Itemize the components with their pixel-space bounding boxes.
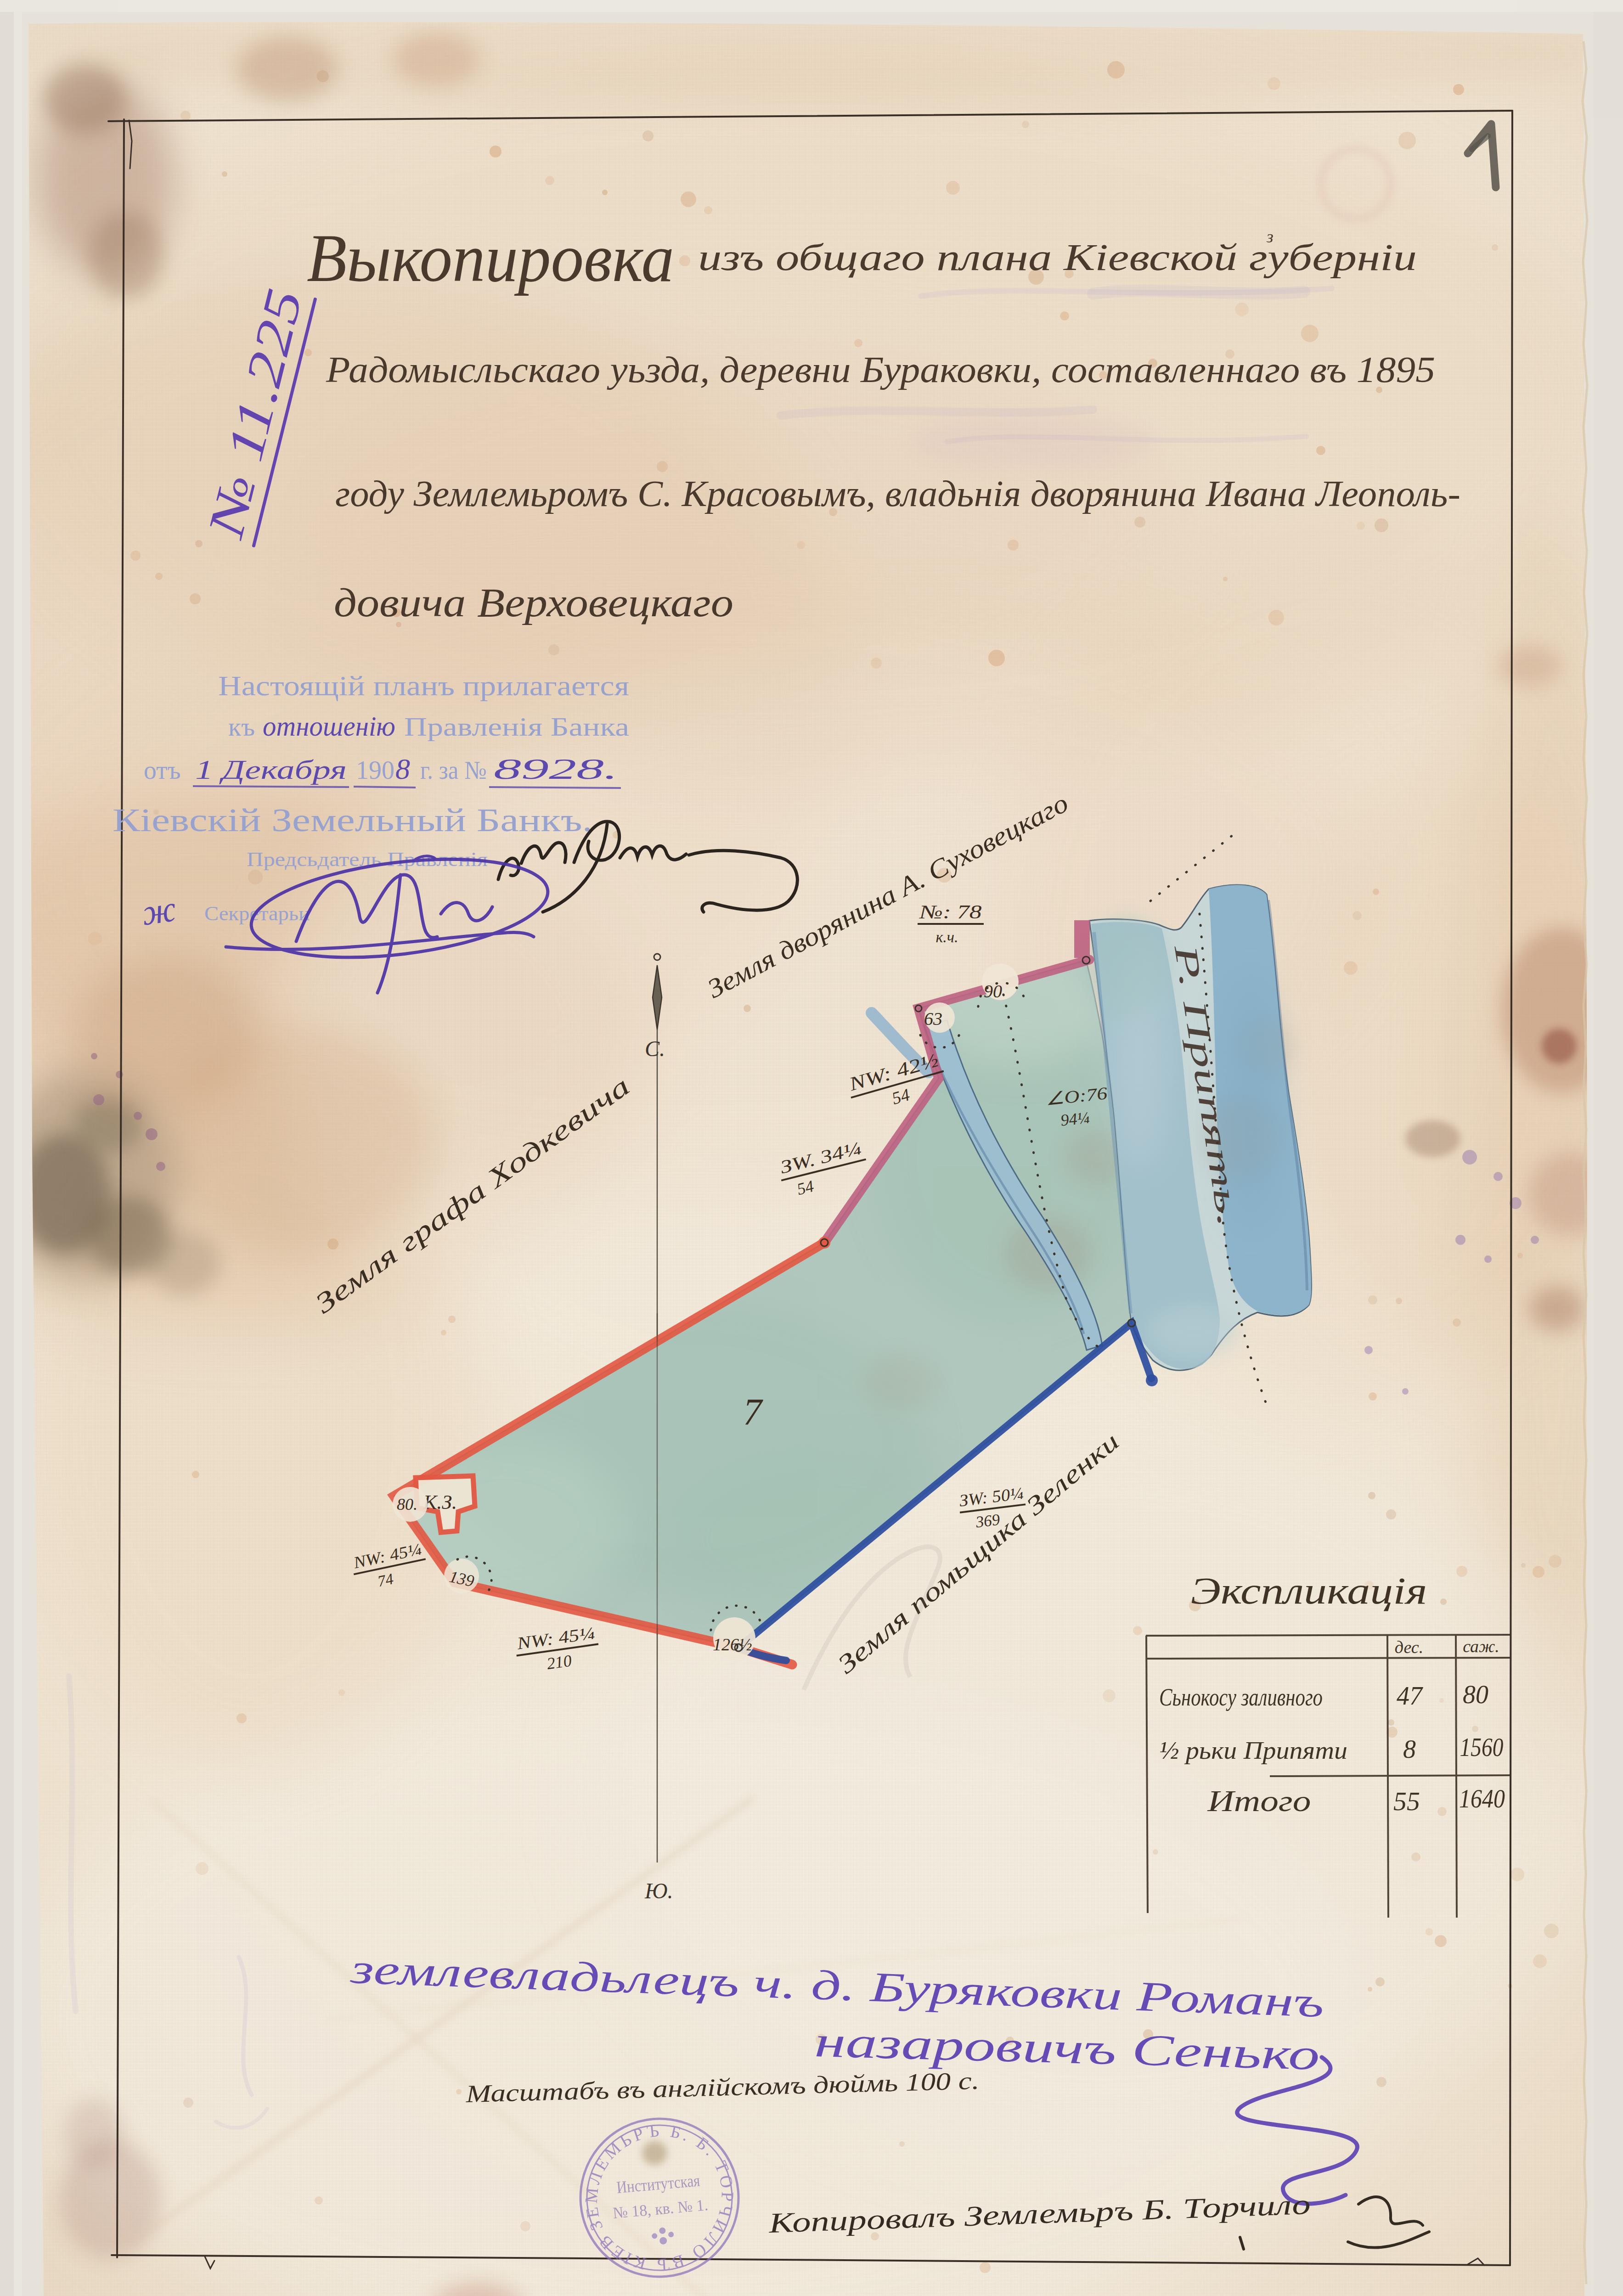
svg-text:К.З.: К.З. <box>423 1491 457 1514</box>
svg-text:Настоящій планъ прилагается: Настоящій планъ прилагается <box>218 670 629 701</box>
svg-text:г. за №: г. за № <box>420 756 487 784</box>
svg-text:190: 190 <box>356 756 394 784</box>
svg-text:1640: 1640 <box>1459 1784 1505 1813</box>
svg-text:47: 47 <box>1397 1682 1423 1710</box>
svg-text:Ю.: Ю. <box>644 1879 673 1903</box>
svg-text:8: 8 <box>395 753 410 785</box>
svg-text:7: 7 <box>743 1391 763 1433</box>
svg-text:63: 63 <box>924 1008 942 1029</box>
svg-text:126½: 126½ <box>713 1635 752 1654</box>
svg-text:къ: къ <box>228 712 255 742</box>
svg-text:отношенію: отношенію <box>263 710 395 742</box>
svg-text:изъ общаго плана Кіевской губе: изъ общаго плана Кіевской губерніи <box>698 236 1417 278</box>
svg-text:Итого: Итого <box>1207 1784 1311 1818</box>
svg-text:Кіевскій Земельный Банкъ.: Кіевскій Земельный Банкъ. <box>113 802 592 838</box>
svg-text:Сьнокосу заливного: Сьнокосу заливного <box>1159 1683 1323 1711</box>
svg-text:90: 90 <box>984 981 1002 1002</box>
svg-text:8928.: 8928. <box>494 753 618 785</box>
svg-text:8: 8 <box>1403 1735 1416 1763</box>
svg-text:к.ч.: к.ч. <box>935 929 958 945</box>
svg-text:55: 55 <box>1393 1786 1420 1816</box>
svg-text:210: 210 <box>546 1651 573 1673</box>
svg-text:1 Декабря: 1 Декабря <box>195 754 347 785</box>
svg-text:Правленія Банка: Правленія Банка <box>404 712 629 742</box>
svg-text:году Землемьромъ С. Красовымъ,: году Землемьромъ С. Красовымъ, владьнія … <box>335 473 1460 514</box>
svg-text:дес.: дес. <box>1395 1638 1423 1657</box>
svg-text:80: 80 <box>1463 1680 1488 1709</box>
svg-text:з: з <box>1266 227 1274 246</box>
svg-text:1560: 1560 <box>1460 1733 1504 1761</box>
svg-text:Экспликація: Экспликація <box>1191 1570 1427 1612</box>
svg-text:саж.: саж. <box>1463 1637 1499 1656</box>
svg-text:Выкопировка: Выкопировка <box>307 220 674 296</box>
svg-text:№: 78: №: 78 <box>919 901 982 923</box>
svg-text:довича Верховецкаго: довича Верховецкаго <box>334 580 733 625</box>
svg-text:80.: 80. <box>397 1495 417 1514</box>
svg-text:ж: ж <box>139 888 179 933</box>
svg-text:94¼: 94¼ <box>1059 1108 1090 1129</box>
svg-text:отъ: отъ <box>144 756 181 784</box>
svg-text:Радомысльскаго уьзда, деревни: Радомысльскаго уьзда, деревни Бураковки,… <box>326 349 1435 390</box>
svg-text:½ рьки Припяти: ½ рьки Припяти <box>1159 1737 1347 1764</box>
svg-text:С.: С. <box>645 1036 665 1061</box>
